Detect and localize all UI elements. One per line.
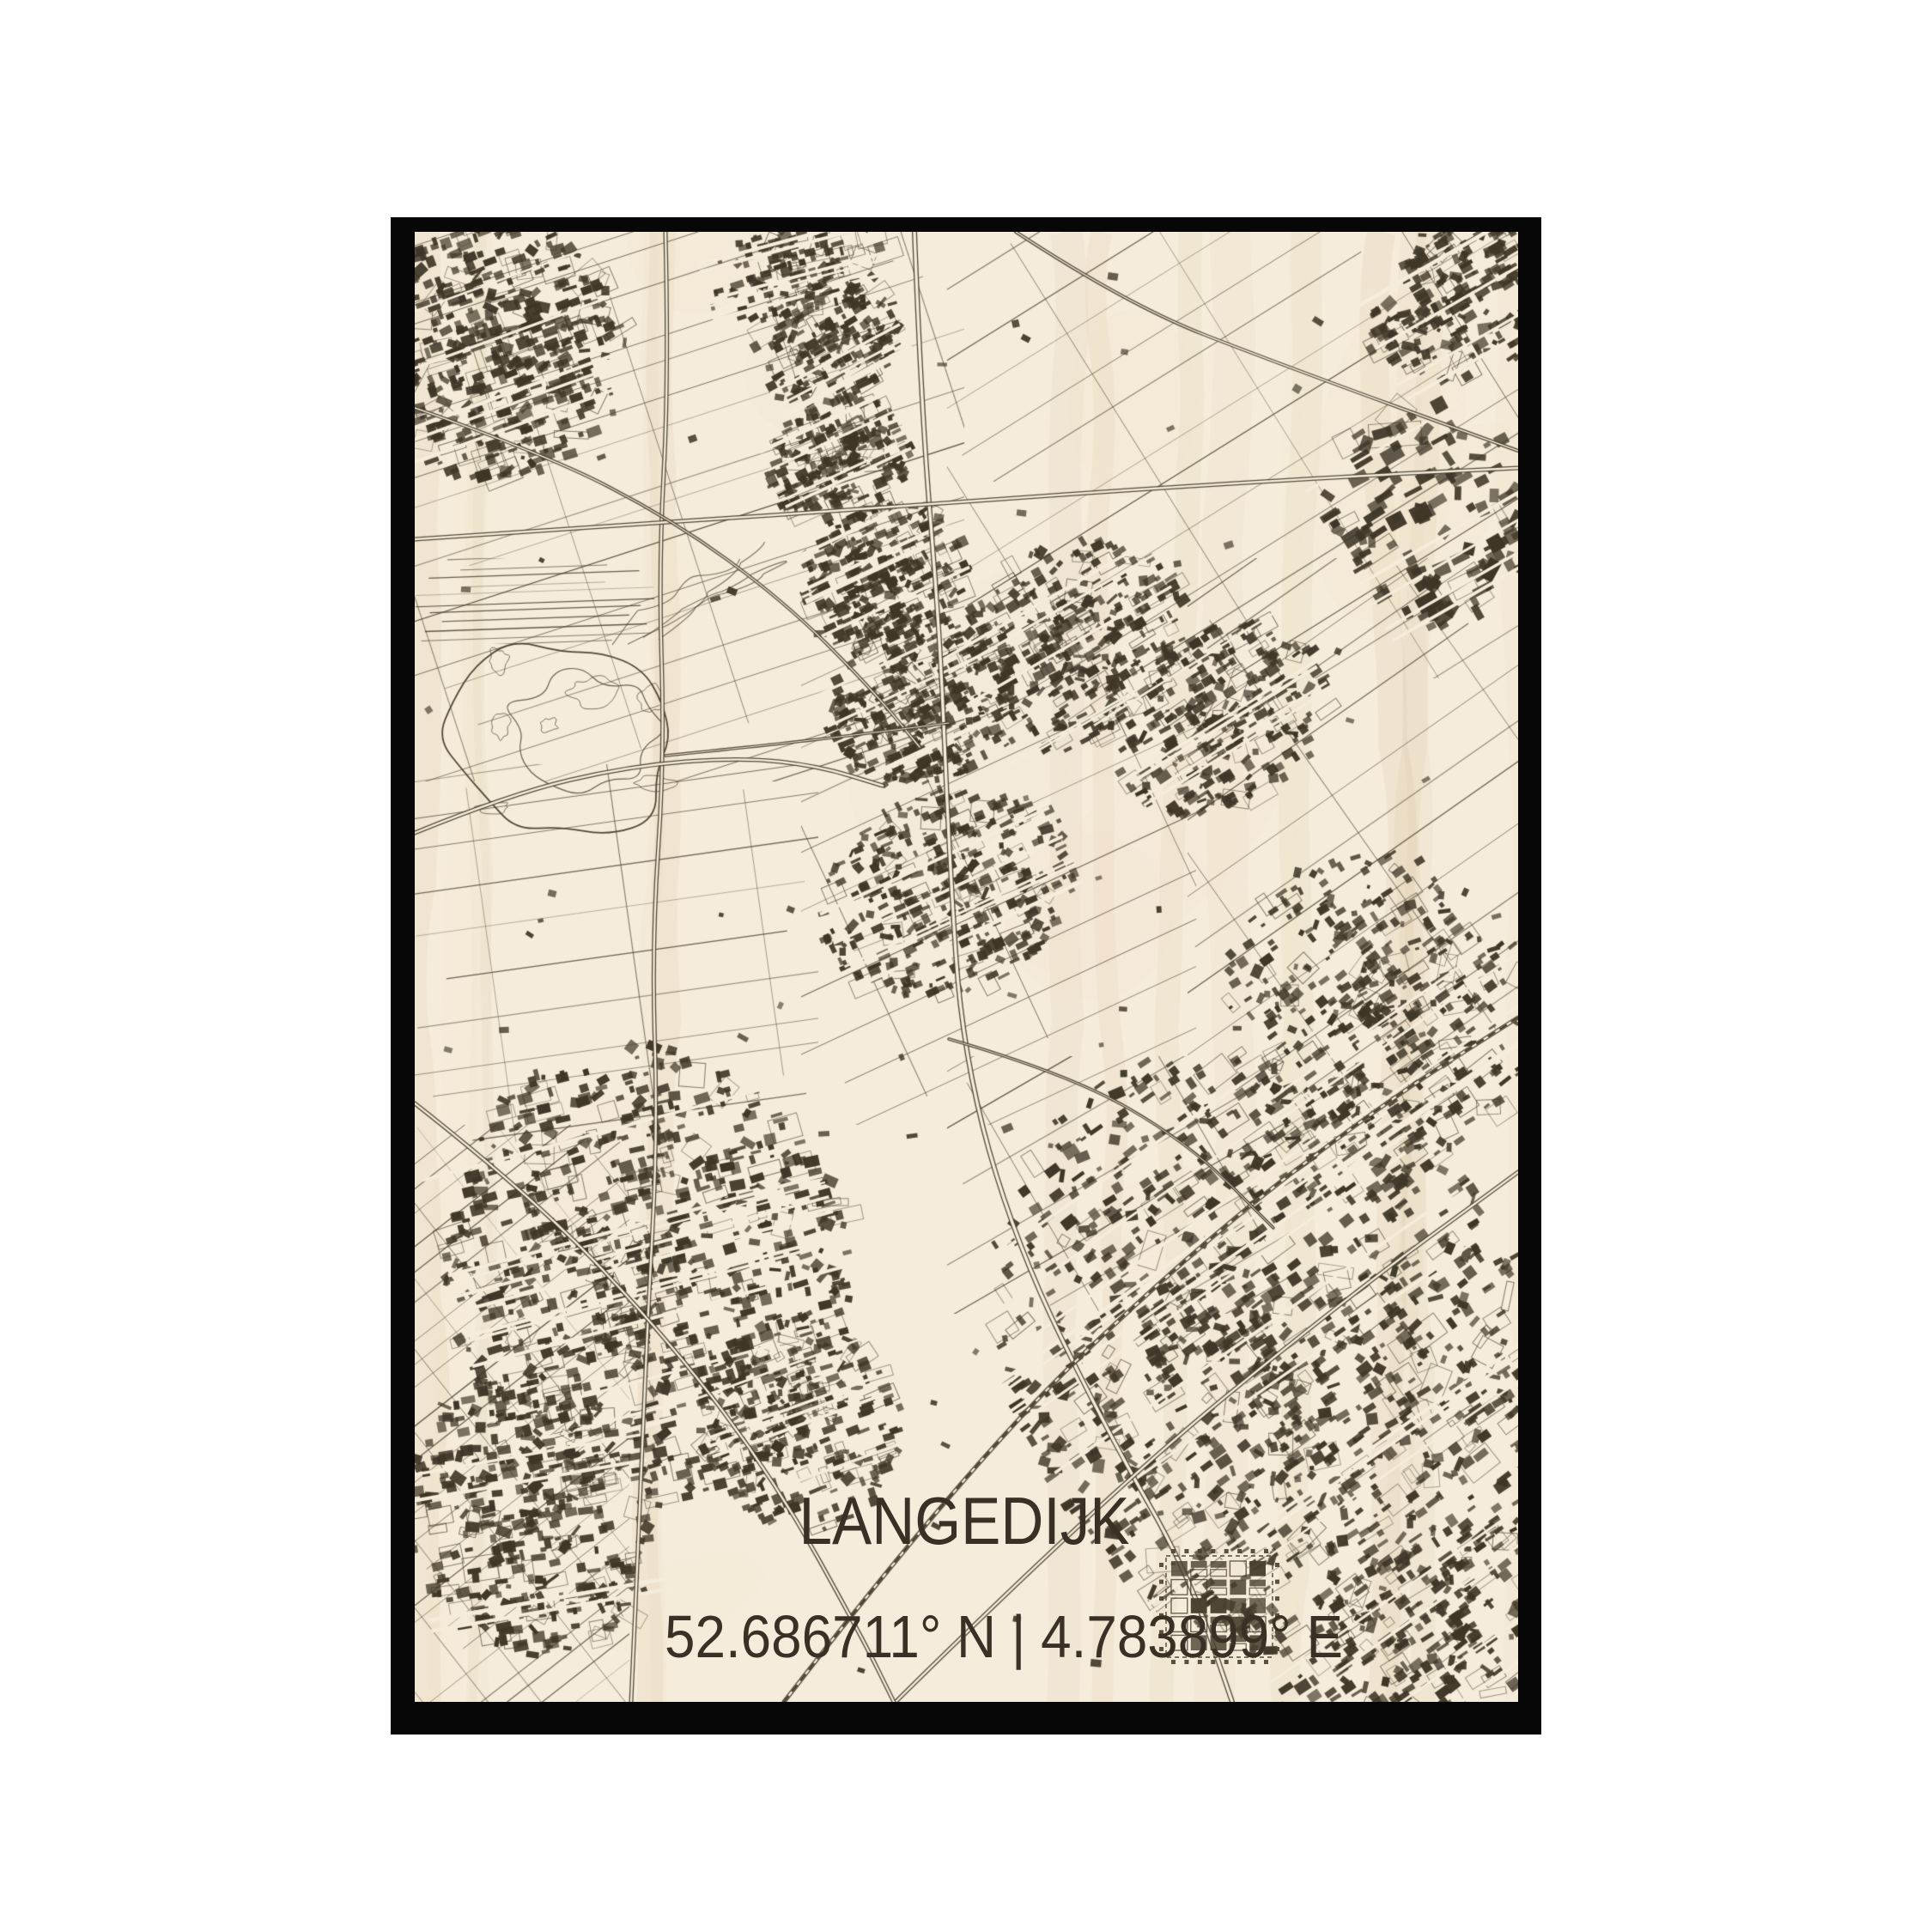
map-title: LANGEDIJK xyxy=(799,1483,1130,1558)
wooden-map-panel: LANGEDIJK 52.686711° N | 4.783899° E xyxy=(415,232,1518,1702)
product-photo-background: LANGEDIJK 52.686711° N | 4.783899° E xyxy=(0,0,1932,1932)
map-text-overlay: LANGEDIJK 52.686711° N | 4.783899° E xyxy=(415,232,1518,1702)
poster-frame: LANGEDIJK 52.686711° N | 4.783899° E xyxy=(391,217,1541,1735)
map-coordinates: 52.686711° N | 4.783899° E xyxy=(665,1603,1343,1670)
